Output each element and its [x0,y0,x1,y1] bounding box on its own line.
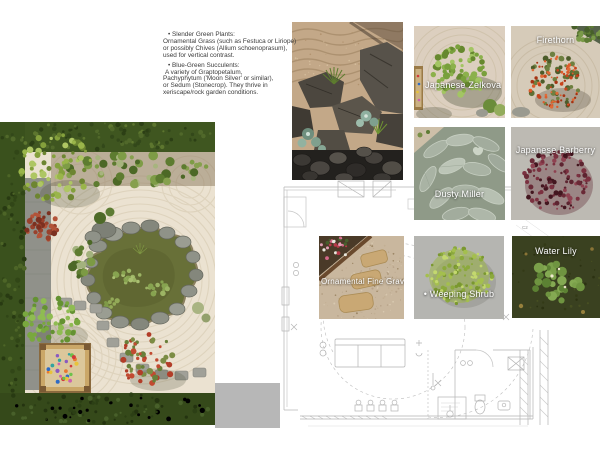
sage-bush [202,314,211,323]
floor-plan-hatch [302,416,387,419]
tile-label: Japanese Zelkova [425,80,501,90]
tile-label: Water Lily [512,246,600,256]
floor-plan-fine-lines [441,403,460,411]
moodboard: C2 [0,0,600,460]
tile-label: Dusty Miller [414,189,505,199]
tile-label: Ornamental Fine Gravel [321,277,404,286]
tile-label: Firethorn [511,35,600,45]
plant-annotations: • Slender Green Plants: Ornamental Grass… [163,32,297,97]
tile-label: • Weeping Shrub [414,289,504,299]
tile-ornamental-fine-gravel[interactable]: Ornamental Fine Gravel [319,236,404,319]
gray-material-swatch[interactable] [215,383,280,428]
plan-room-label: C2 [522,225,528,230]
tile-firethorn[interactable]: Firethorn [511,26,600,118]
garden-aerial-photo[interactable] [0,122,215,425]
annotation-line: used for vertical contrast. [163,53,297,60]
tile-label: Japanese Barberry [511,145,600,155]
annotation-line: xeriscape/rock garden conditions. [163,90,297,97]
rock-garden-photo[interactable] [292,22,403,180]
pond-bush [94,212,106,224]
tile-japanese-zelkova[interactable]: Japanese Zelkova [414,26,505,118]
sage-bush [192,302,204,314]
tile-water-lily[interactable]: Water Lily [512,236,600,318]
pond-bush [106,208,115,217]
tile-weeping-shrub[interactable]: • Weeping Shrub [414,236,504,319]
tile-dusty-miller[interactable]: Dusty Miller [414,127,505,220]
tile-japanese-barberry[interactable]: Japanese Barberry [511,127,600,220]
